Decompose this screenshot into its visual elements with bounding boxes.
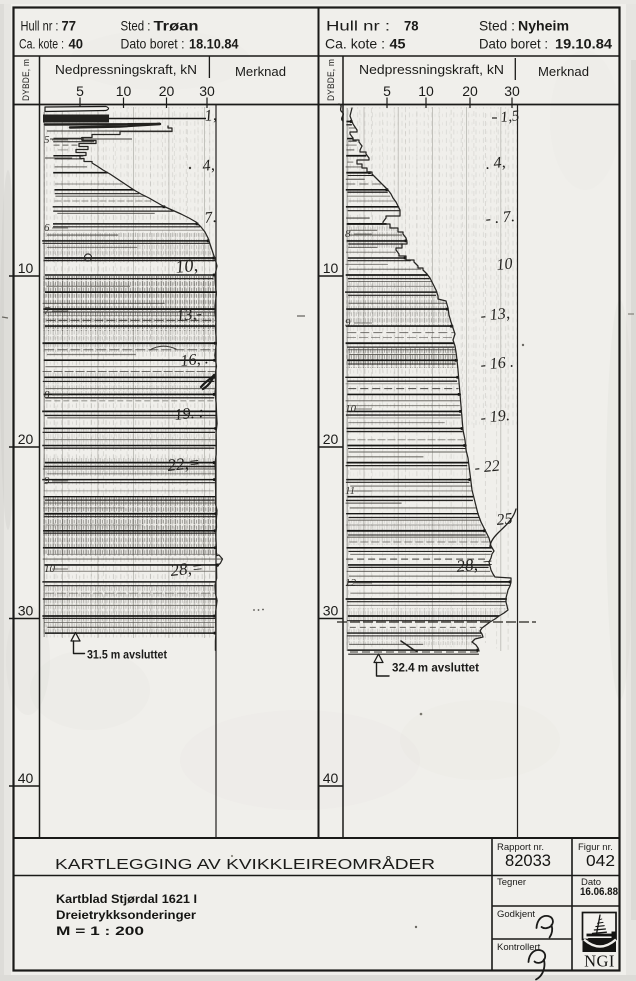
svg-text:6: 6	[44, 222, 50, 234]
svg-text:8: 8	[345, 228, 351, 240]
svg-text:28, =: 28, =	[455, 553, 494, 576]
svg-text:5: 5	[44, 134, 50, 146]
svg-text:77: 77	[62, 18, 77, 34]
svg-text:Dato boret :: Dato boret :	[121, 36, 185, 52]
svg-text:40: 40	[69, 36, 84, 52]
svg-text:Merknad: Merknad	[538, 64, 589, 79]
svg-text:- 19.: - 19.	[480, 407, 511, 427]
svg-text:Nedpressningskraft, kN: Nedpressningskraft, kN	[359, 62, 504, 77]
svg-text:19.10.84: 19.10.84	[555, 36, 612, 52]
svg-text:20: 20	[323, 431, 339, 447]
svg-text:5: 5	[76, 83, 84, 99]
svg-text:11: 11	[345, 485, 355, 497]
svg-text:Sted :: Sted :	[121, 18, 151, 34]
svg-text:31.5 m avsluttet: 31.5 m avsluttet	[87, 650, 167, 662]
svg-text:9: 9	[345, 317, 351, 329]
svg-text:10: 10	[418, 83, 434, 99]
svg-text:30: 30	[18, 603, 34, 619]
svg-text:Tegner: Tegner	[497, 877, 526, 888]
svg-text:. 4,: . 4,	[485, 154, 507, 173]
svg-text:9: 9	[44, 475, 50, 487]
svg-text:- 22: - 22	[474, 457, 501, 477]
svg-text:45: 45	[390, 36, 406, 52]
svg-text:5: 5	[383, 83, 391, 99]
svg-text:7: 7	[44, 305, 50, 317]
svg-text:DYBDE, m: DYBDE, m	[21, 59, 32, 101]
svg-text:Dato boret :: Dato boret :	[479, 36, 548, 52]
svg-text:10: 10	[496, 255, 514, 274]
svg-text:18.10.84: 18.10.84	[189, 36, 239, 52]
svg-text:Hull nr :: Hull nr :	[21, 18, 59, 34]
svg-text:NGI: NGI	[584, 952, 615, 971]
svg-text:22,=: 22,=	[166, 453, 201, 475]
svg-text:30: 30	[323, 603, 339, 619]
svg-text:7.: 7.	[204, 209, 218, 227]
svg-text:1,: 1,	[204, 107, 218, 125]
svg-text:- . 7.: - . 7.	[485, 208, 516, 228]
svg-text:25: 25	[496, 510, 514, 529]
svg-text:Kartblad Stjørdal 1621 I: Kartblad Stjørdal 1621 I	[56, 892, 197, 906]
svg-text:Figur nr.: Figur nr.	[578, 842, 613, 853]
svg-text:16, .: 16, .	[180, 350, 210, 370]
svg-text:20: 20	[18, 431, 34, 447]
svg-text:20: 20	[462, 83, 478, 99]
svg-text:Nedpressningskraft, kN: Nedpressningskraft, kN	[55, 62, 197, 77]
svg-text:Trøan: Trøan	[154, 18, 199, 34]
svg-text:KARTLEGGING AV KVIKKLEIREOMRÅD: KARTLEGGING AV KVIKKLEIREOMRÅDER	[55, 856, 435, 873]
svg-text:Merknad: Merknad	[235, 64, 286, 79]
svg-text:- 16 .: - 16 .	[480, 354, 515, 374]
svg-text:Dreietrykksonderinger: Dreietrykksonderinger	[56, 908, 196, 922]
svg-text:M = 1 : 200: M = 1 : 200	[56, 924, 144, 938]
svg-text:16.06.88: 16.06.88	[580, 886, 618, 898]
svg-text:28,=: 28,=	[169, 558, 204, 580]
svg-text:8: 8	[44, 389, 50, 401]
svg-text:20: 20	[159, 83, 175, 99]
svg-text:10,: 10,	[174, 255, 198, 277]
svg-text:30: 30	[199, 83, 215, 99]
svg-text:40: 40	[323, 770, 339, 786]
svg-text:1,5: 1,5	[500, 108, 521, 126]
svg-text:4,: 4,	[202, 157, 216, 175]
svg-text:10: 10	[116, 83, 132, 99]
svg-text:10: 10	[18, 260, 34, 276]
svg-text:19. :: 19. :	[174, 404, 205, 424]
svg-text:Nyheim: Nyheim	[518, 18, 569, 34]
svg-text:82033: 82033	[505, 852, 551, 870]
svg-text:Godkjent: Godkjent	[497, 909, 535, 920]
svg-text:Ca. kote :: Ca. kote :	[19, 36, 64, 52]
svg-text:10: 10	[323, 260, 339, 276]
svg-text:30: 30	[504, 83, 520, 99]
svg-text:Hull nr :: Hull nr :	[326, 18, 390, 34]
svg-text:13,-: 13,-	[176, 305, 203, 325]
svg-text:32.4 m avsluttet: 32.4 m avsluttet	[392, 663, 479, 675]
svg-text:042: 042	[586, 853, 615, 870]
svg-text:- 13,: - 13,	[480, 305, 511, 325]
svg-text:40: 40	[18, 770, 34, 786]
svg-text:DYBDE, m: DYBDE, m	[326, 59, 337, 101]
svg-text:Ca. kote :: Ca. kote :	[325, 36, 385, 52]
svg-text:78: 78	[404, 18, 419, 34]
svg-text:Sted :: Sted :	[479, 18, 515, 34]
